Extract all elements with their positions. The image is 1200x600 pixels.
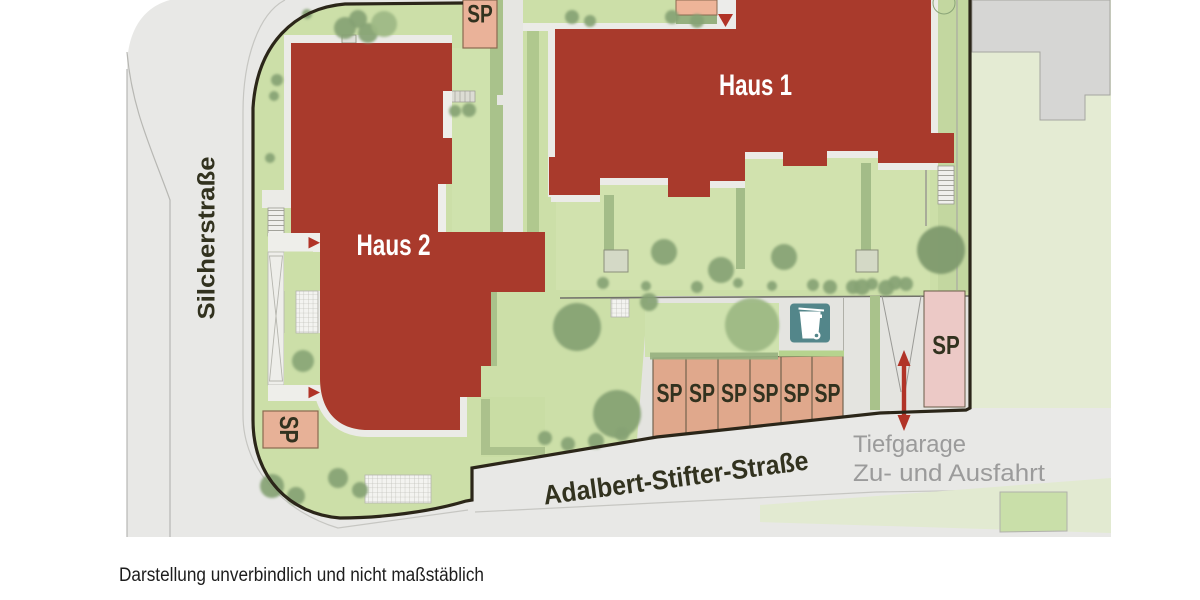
svg-text:SP: SP	[689, 378, 715, 408]
svg-text:SP: SP	[784, 378, 810, 408]
svg-text:SP: SP	[657, 378, 683, 408]
svg-text:Tiefgarage: Tiefgarage	[853, 431, 966, 458]
svg-text:SP: SP	[815, 378, 841, 408]
svg-text:SP: SP	[753, 378, 779, 408]
svg-text:Darstellung unverbindlich und: Darstellung unverbindlich und nicht maßs…	[119, 565, 484, 586]
svg-text:Haus 1: Haus 1	[719, 69, 792, 102]
svg-text:Zu- und Ausfahrt: Zu- und Ausfahrt	[853, 460, 1045, 487]
svg-text:SP: SP	[467, 1, 493, 29]
svg-text:Silcherstraße: Silcherstraße	[194, 157, 221, 320]
svg-text:Haus 2: Haus 2	[357, 229, 431, 262]
svg-text:SP: SP	[721, 378, 747, 408]
svg-text:SP: SP	[274, 416, 304, 444]
svg-text:SP: SP	[932, 330, 960, 360]
